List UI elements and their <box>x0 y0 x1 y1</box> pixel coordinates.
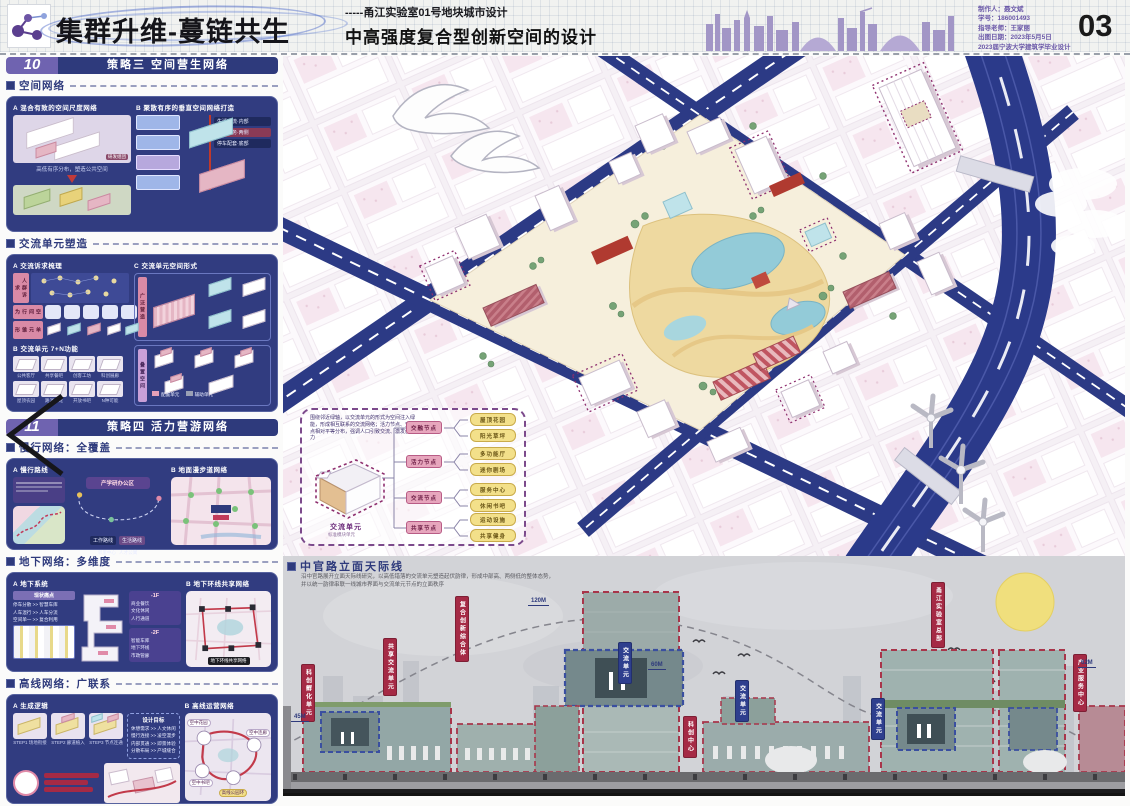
ground-strip <box>283 772 1125 782</box>
elevation-drawing <box>283 556 1125 796</box>
legend-item: 屋顶花园 <box>470 413 516 426</box>
title-block: 集群升维-蔓链共生 <box>56 2 316 50</box>
height-dimension: 62M <box>1078 660 1096 668</box>
legend-node: 活力节点 <box>406 455 442 468</box>
masterplan-axonometric: 围绕邻近绿轴，以交流单元的形式为空间注入绿能，形成相互联系的交流网络；活力节点、… <box>283 56 1125 556</box>
skyline-description: 沿中官路展开立面天际线研究，以高低错落的交流单元塑造起伏韵律，形成中部高、两侧低… <box>301 574 661 589</box>
legend-item: 运动设施 <box>470 513 516 526</box>
legend-node: 交流节点 <box>406 491 442 504</box>
page-flip-arrow-icon <box>0 390 70 480</box>
unit-tag: 交流单元 <box>618 642 632 684</box>
header: 集群升维-蔓链共生 -----甬江实验室01号地块城市设计 中高强度复合型创新空… <box>0 0 1130 52</box>
unit-shaping-panel: A 交流诉求梳理 人群诉求 空间行为 <box>6 254 278 412</box>
unit-tag: 交流单元 <box>871 698 885 740</box>
section-title: 策略三 空间营生网络 <box>58 57 278 74</box>
section-title: 策略四 活力营游网络 <box>58 419 278 436</box>
height-dimension: 45M <box>291 714 309 722</box>
panel-a-title: A 混合有致的空间尺度网络 <box>13 102 131 112</box>
poster-subtitle-line2: 中高强度复合型创新空间的设计 <box>345 23 675 48</box>
legend-node: 交融节点 <box>406 421 442 434</box>
underground-stairs-diagram <box>78 591 126 665</box>
section-10-header: 10 策略三 空间营生网络 <box>6 57 278 74</box>
skyline-title: 中官路立面天际线 <box>300 558 404 574</box>
legend-item: 休闲书吧 <box>470 499 516 512</box>
vertical-tag: 停车配套·底部 <box>214 139 271 148</box>
scale-network-thumb: 研发组团 <box>13 115 131 163</box>
city-skyline-silhouette <box>700 6 965 51</box>
height-dimension: 60M <box>648 662 666 670</box>
legend-item: 多功能厅 <box>470 447 516 460</box>
credit-line: 指导老师：王家丽 <box>978 24 1083 33</box>
page-number: 03 <box>1078 8 1112 44</box>
underground-network-panel: A 地下系统 现状痛点 停车分散 >> 智慧车库 人车混行 >> 人车分流 空间… <box>6 572 278 672</box>
panel-b-title: B 聚散有序的垂直空间网络打造 <box>136 102 271 112</box>
building-tag: 科创中心 <box>683 716 697 758</box>
legend-node: 共享节点 <box>406 521 442 534</box>
unit-tag: 交流单元 <box>735 680 749 722</box>
subsection-unit-shaping: 交流单元塑造 <box>6 237 278 250</box>
header-separator <box>0 53 1130 55</box>
section-bullet-icon <box>6 679 15 688</box>
subsection-highline-network: 高线网络：广联系 <box>6 677 278 690</box>
section-number: 10 <box>6 57 58 74</box>
highline-loop-map: 空中花园 空中连廊 空中书吧 高线公园环 <box>185 713 271 801</box>
red-down-arrow-icon <box>67 175 77 183</box>
mixed-block-thumb <box>13 185 131 215</box>
legend-item: 迷你剧场 <box>470 463 516 476</box>
underground-loop-map: 地下环线共享网络 <box>186 591 271 667</box>
skyline-elevation-panel: 中官路立面天际线 沿中官路展开立面天际线研究，以高低错落的交流单元塑造起伏韵律，… <box>283 556 1125 796</box>
sun-icon <box>996 573 1054 631</box>
legend-item: 共享健身 <box>470 529 516 542</box>
poster-title: 集群升维-蔓链共生 <box>56 10 290 49</box>
space-network-panel: A 混合有致的空间尺度网络 研发组团 高低有序分布，塑造公共空间 <box>6 96 278 232</box>
highline-network-panel: A 生成逻辑 STEP1 场地衔接 STEP2 廊道植入 STEP3 节点连通 … <box>6 694 278 804</box>
section-bullet-icon <box>287 562 296 571</box>
credit-line: 学号：186001493 <box>978 14 1083 23</box>
section-bullet-icon <box>6 557 15 566</box>
credit-line: 出图日期：2023年5月5日 <box>978 33 1083 42</box>
height-dimension: 120M <box>528 598 549 606</box>
poster-board: 集群升维-蔓链共生 -----甬江实验室01号地块城市设计 中高强度复合型创新空… <box>0 0 1130 801</box>
walk-map-thumb <box>171 477 271 545</box>
subsection-space-network: 空间网络 <box>6 79 278 92</box>
credit-line: 2023届宁波大学建筑学毕业设计 <box>978 43 1083 52</box>
building-tag: 复合创新综合体 <box>455 596 469 662</box>
legend-item: 阳光草坪 <box>470 429 516 442</box>
poster-subtitle-line1: -----甬江实验室01号地块城市设计 <box>345 4 675 20</box>
legend-item: 服务中心 <box>470 483 516 496</box>
building-tag: 甬江实验室总部 <box>931 582 945 648</box>
credits-block: 制作人：聂文斌 学号：186001493 指导老师：王家丽 出图日期：2023年… <box>978 5 1083 52</box>
section-bullet-icon <box>6 81 15 90</box>
unit-legend-box: 围绕邻近绿轴，以交流单元的形式为空间注入绿能，形成相互联系的交流网络；活力节点、… <box>300 408 526 546</box>
bottom-rule <box>283 793 1125 796</box>
credit-line: 制作人：聂文斌 <box>978 5 1083 14</box>
section-bullet-icon <box>6 239 15 248</box>
building-tag: 共享交流单元 <box>383 638 397 696</box>
